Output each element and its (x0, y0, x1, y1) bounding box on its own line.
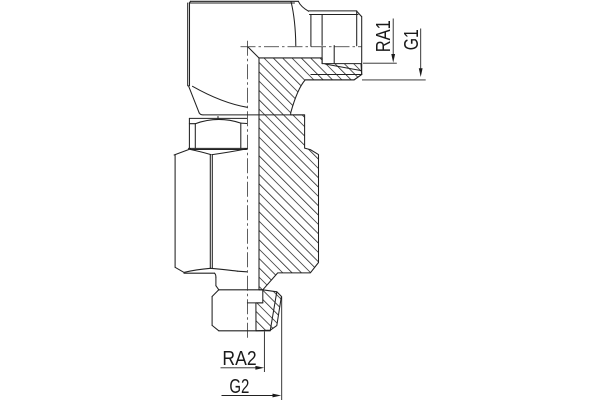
svg-text:RA1: RA1 (373, 20, 395, 52)
svg-text:RA2: RA2 (222, 348, 256, 370)
svg-text:G1: G1 (401, 29, 423, 50)
svg-text:G2: G2 (229, 376, 249, 398)
